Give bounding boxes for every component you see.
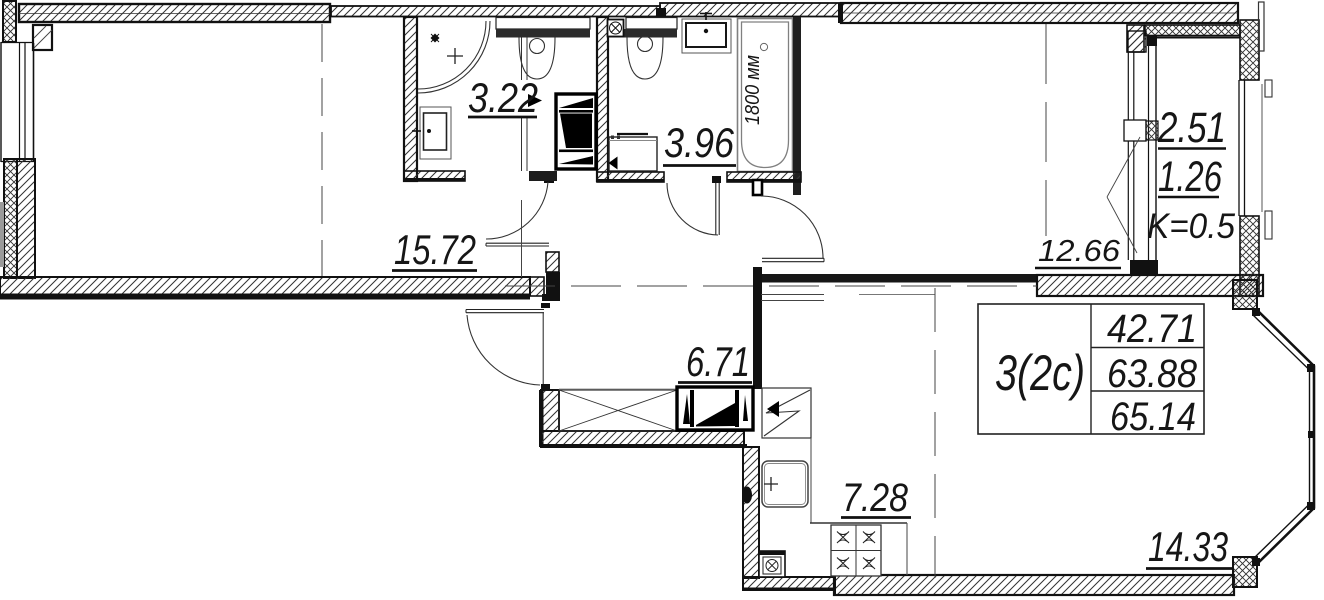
svg-text:3.96: 3.96 xyxy=(664,119,735,166)
svg-text:K=0.5: K=0.5 xyxy=(1147,207,1235,246)
svg-text:63.88: 63.88 xyxy=(1107,352,1198,396)
svg-text:1800 мм: 1800 мм xyxy=(742,55,764,125)
svg-text:65.14: 65.14 xyxy=(1110,395,1196,439)
svg-text:7.28: 7.28 xyxy=(842,476,909,520)
svg-text:42.71: 42.71 xyxy=(1107,307,1197,351)
svg-text:14.33: 14.33 xyxy=(1148,523,1228,570)
svg-text:3(2с): 3(2с) xyxy=(995,345,1085,401)
svg-text:12.66: 12.66 xyxy=(1038,233,1121,268)
svg-text:6.71: 6.71 xyxy=(686,338,750,385)
svg-text:2.51: 2.51 xyxy=(1157,104,1226,152)
svg-text:1.26: 1.26 xyxy=(1158,153,1222,201)
svg-text:15.72: 15.72 xyxy=(394,226,476,273)
svg-text:3.22: 3.22 xyxy=(468,74,538,121)
